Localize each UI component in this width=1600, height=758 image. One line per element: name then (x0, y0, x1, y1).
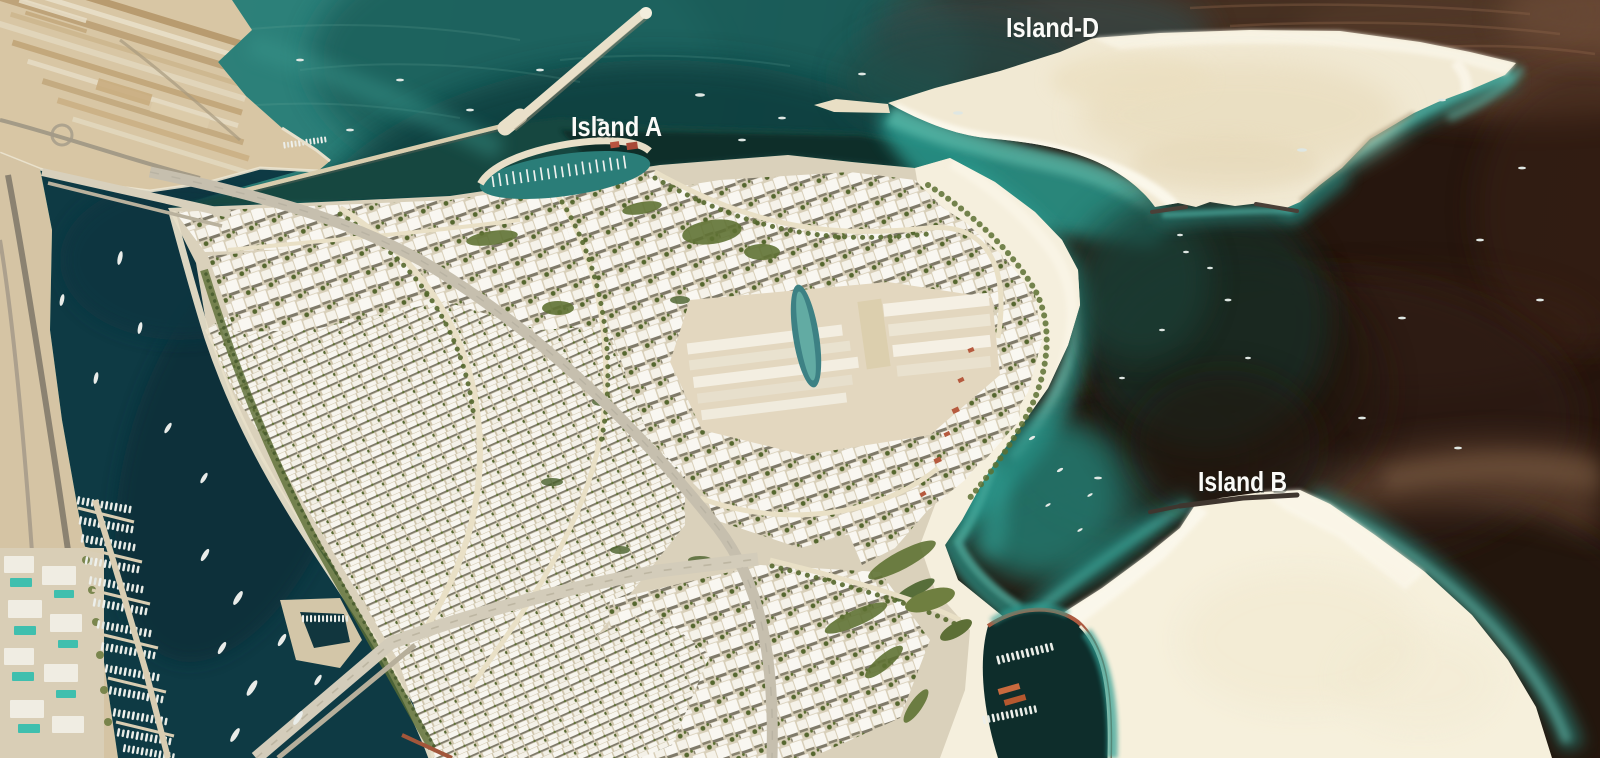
svg-text:Island-D: Island-D (1006, 12, 1099, 43)
svg-text:Island A: Island A (571, 111, 662, 142)
svg-text:Island B: Island B (1198, 466, 1287, 497)
